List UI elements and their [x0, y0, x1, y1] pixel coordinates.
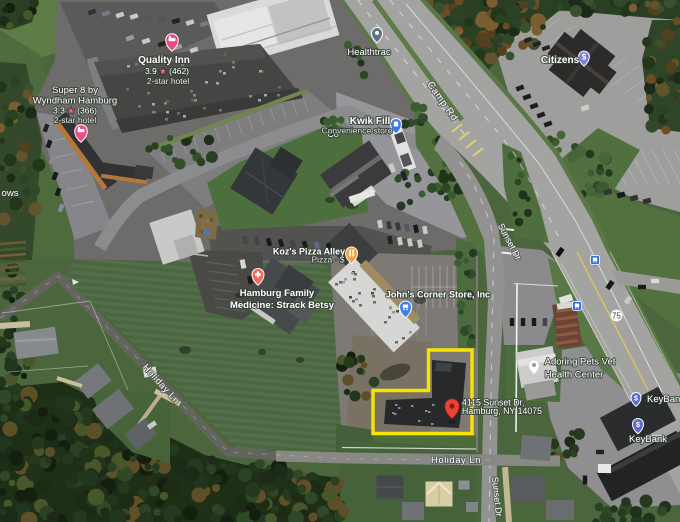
- svg-text:Health Center: Health Center: [545, 370, 604, 381]
- svg-text:75: 75: [612, 312, 621, 321]
- svg-text:3.3 ★ (366): 3.3 ★ (366): [53, 106, 97, 116]
- svg-text:3.9 ★ (462): 3.9 ★ (462): [145, 66, 189, 76]
- svg-text:Super 8 by: Super 8 by: [52, 85, 98, 96]
- svg-text:2-star hotel: 2-star hotel: [147, 76, 190, 86]
- svg-text:Adoring Pets Vet: Adoring Pets Vet: [545, 357, 616, 368]
- svg-text:Pizza · $: Pizza · $: [311, 255, 344, 265]
- svg-text:KeyBank: KeyBank: [629, 434, 667, 445]
- svg-text:$: $: [634, 395, 638, 402]
- svg-text:Convenience store: Convenience store: [322, 126, 393, 136]
- svg-text:Healthtrac: Healthtrac: [347, 47, 391, 58]
- svg-text:Hamburg, NY 14075: Hamburg, NY 14075: [462, 406, 542, 416]
- svg-text:Citizens: Citizens: [541, 55, 580, 66]
- svg-text:$: $: [582, 53, 587, 62]
- svg-text:John's Corner Store, Inc: John's Corner Store, Inc: [386, 290, 490, 300]
- svg-text:Quality Inn: Quality Inn: [138, 55, 190, 66]
- svg-text:2-star hotel: 2-star hotel: [54, 115, 97, 125]
- svg-text:ows: ows: [2, 188, 19, 199]
- svg-text:Hamburg Family: Hamburg Family: [240, 288, 315, 299]
- svg-text:KeyBank: KeyBank: [647, 394, 680, 405]
- svg-text:Medicine: Strack Betsy: Medicine: Strack Betsy: [230, 300, 335, 311]
- svg-text:Holiday Ln: Holiday Ln: [431, 455, 481, 466]
